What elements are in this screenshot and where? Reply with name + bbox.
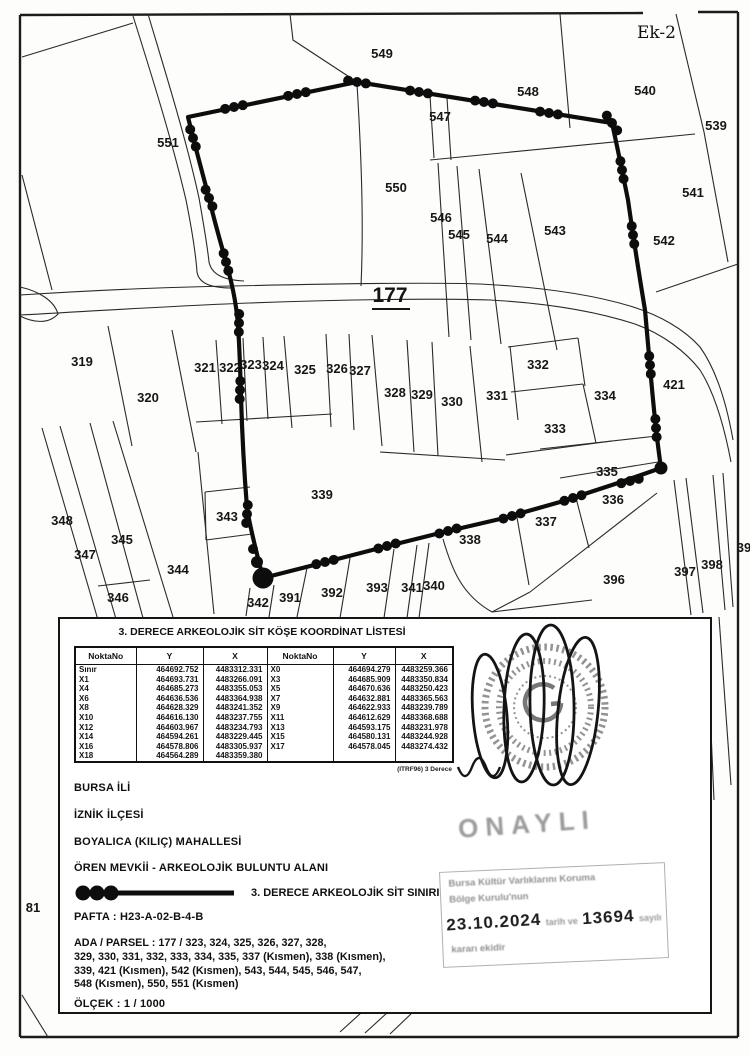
- parcel-label: 397: [674, 564, 696, 579]
- coordinate-value: 464580.131: [333, 732, 395, 742]
- parcel-label: 336: [602, 492, 624, 507]
- parcel-label: 335: [596, 464, 618, 479]
- parcel-label: 334: [594, 388, 616, 403]
- datum-note: (ITRF96) 3 Derece: [74, 766, 452, 773]
- coordinate-value: 464692.752: [136, 665, 203, 675]
- point-id: X1: [75, 675, 136, 685]
- decision-stamp: Bursa Kültür Varlıklarını Koruma Bölge K…: [439, 862, 669, 968]
- coordinate-value: 4483237.755: [203, 713, 267, 723]
- site-boundary-line: [188, 82, 661, 578]
- coordinate-value: 4483312.331: [203, 665, 267, 675]
- point-id: X11: [267, 713, 333, 723]
- coordinate-value: 4483359.380: [203, 751, 267, 762]
- coordinate-row: X1464693.7314483266.091X3464685.90944833…: [75, 675, 453, 685]
- point-id: X12: [75, 723, 136, 733]
- ada-parsel-line: ADA / PARSEL : 177 / 323, 324, 325, 326,…: [74, 937, 386, 951]
- parcel-label: 81: [26, 900, 40, 915]
- parcel-label: 324: [262, 358, 284, 373]
- parcel-label: 548: [517, 84, 539, 99]
- parcel-label: 321: [194, 360, 216, 375]
- parcel-label: 551: [157, 135, 179, 150]
- stamp-text: tarih ve: [546, 916, 578, 927]
- parcel-label: 329: [411, 387, 433, 402]
- parcel-label: 393: [366, 580, 388, 595]
- coordinate-value: 464593.175: [333, 723, 395, 733]
- point-id: [267, 751, 333, 762]
- coordinate-value: 464628.329: [136, 703, 203, 713]
- parcel-label: 543: [544, 223, 566, 238]
- coordinate-value: 4483229.445: [203, 732, 267, 742]
- point-id: X6: [75, 694, 136, 704]
- parcel-label: 421: [663, 377, 685, 392]
- legend-info-box: 3. DERECE ARKEOLOJİK SİT KÖŞE KOORDİNAT …: [58, 617, 712, 1014]
- coordinate-value: 464670.636: [333, 684, 395, 694]
- point-id: X10: [75, 713, 136, 723]
- parcel-label: 325: [294, 362, 316, 377]
- parcel-label: 337: [535, 514, 557, 529]
- parcel-label: 347: [74, 547, 96, 562]
- coordinate-row: X10464616.1304483237.755X11464612.629448…: [75, 713, 453, 723]
- point-id: X15: [267, 732, 333, 742]
- parcel-label: 326: [326, 361, 348, 376]
- parcel-label: 39: [737, 540, 750, 555]
- parcel-label: 342: [247, 595, 269, 610]
- parcel-label: 332: [527, 357, 549, 372]
- parcel-label: 541: [682, 185, 704, 200]
- pafta-line: PAFTA : H23-A-02-B-4-B: [74, 911, 203, 923]
- neighborhood-line: BOYALICA (KILIÇ) MAHALLESİ: [74, 836, 242, 848]
- parcel-label: 396: [603, 572, 625, 587]
- coordinate-row: X16464578.8064483305.937X17464578.045448…: [75, 742, 453, 752]
- parcel-label: 338: [459, 532, 481, 547]
- parcel-label: 550: [385, 180, 407, 195]
- point-id: X7: [267, 694, 333, 704]
- parcel-label: 319: [71, 354, 93, 369]
- coordinate-row: X14464594.2614483229.445X15464580.131448…: [75, 732, 453, 742]
- stamp-line: Bölge Kurulu'nun: [449, 891, 529, 905]
- coordinate-value: 464578.806: [136, 742, 203, 752]
- coordinate-value: 4483234.793: [203, 723, 267, 733]
- coordinate-row: X8464628.3294483241.352X9464622.93344832…: [75, 703, 453, 713]
- parcel-label: 339: [311, 487, 333, 502]
- parcel-label: 320: [137, 390, 159, 405]
- handwritten-date: 23.10.2024: [446, 910, 542, 936]
- parcel-label: 331: [486, 388, 508, 403]
- coordinate-value: 4483241.352: [203, 703, 267, 713]
- ada-parsel-line: 548 (Kısmen), 550, 551 (Kısmen): [74, 978, 386, 992]
- column-header: X: [203, 647, 267, 665]
- coordinate-value: 464616.130: [136, 713, 203, 723]
- site-line: ÖREN MEVKİİ - ARKEOLOJİK BULUNTU ALANI: [74, 862, 328, 874]
- point-id: X13: [267, 723, 333, 733]
- parcel-label: 546: [430, 210, 452, 225]
- point-id: X17: [267, 742, 333, 752]
- point-id: X4: [75, 684, 136, 694]
- parcel-label: 545: [448, 227, 470, 242]
- coordinate-table: NoktaNoYXNoktaNoYX Sınır464692.752448331…: [74, 646, 454, 763]
- parcel-label: 544: [486, 231, 508, 246]
- boundary-corner-dots: [185, 76, 667, 589]
- coordinate-value: 4483355.053: [203, 684, 267, 694]
- parcel-label: 348: [51, 513, 73, 528]
- parcel-label: 542: [653, 233, 675, 248]
- stamp-text: sayılı: [639, 912, 662, 923]
- district-line: İZNİK İLÇESİ: [74, 809, 144, 821]
- coordinate-row: Sınır464692.7524483312.331X0464694.27944…: [75, 665, 453, 675]
- stamp-line: kararı ekidir: [451, 942, 505, 955]
- coordinate-row: X18464564.2894483359.380: [75, 751, 453, 762]
- road-number-label: 177: [372, 284, 407, 307]
- parcel-label: 392: [321, 585, 343, 600]
- coordinate-value: 464694.279: [333, 665, 395, 675]
- coordinate-row: X12464603.9674483234.793X13464593.175448…: [75, 723, 453, 733]
- parcel-label: 398: [701, 557, 723, 572]
- coordinate-value: 464603.967: [136, 723, 203, 733]
- ada-parsel-block: ADA / PARSEL : 177 / 323, 324, 325, 326,…: [74, 937, 386, 992]
- parcel-label: 539: [705, 118, 727, 133]
- coordinate-value: 464612.629: [333, 713, 395, 723]
- point-id: X16: [75, 742, 136, 752]
- coordinate-value: 464693.731: [136, 675, 203, 685]
- coordinate-table-header: NoktaNoYXNoktaNoYX: [75, 647, 453, 665]
- coordinate-value: 4483364.938: [203, 694, 267, 704]
- legend-row: 3. DERECE ARKEOLOJİK SİT SINIRI: [72, 883, 439, 903]
- coordinate-value: 464632.881: [333, 694, 395, 704]
- coordinate-value: 464564.289: [136, 751, 203, 762]
- stamp-decision-line: 23.10.2024 tarih ve 13694 sayılı: [446, 905, 662, 934]
- province-line: BURSA İLİ: [74, 782, 130, 794]
- parcel-label: 549: [371, 46, 393, 61]
- coordinate-value: 4483266.091: [203, 675, 267, 685]
- stamp-line: Bursa Kültür Varlıklarını Koruma: [448, 872, 595, 889]
- point-id: Sınır: [75, 665, 136, 675]
- annex-label: Ek-2: [637, 23, 676, 43]
- point-id: X3: [267, 675, 333, 685]
- point-id: X8: [75, 703, 136, 713]
- parcel-label: 343: [216, 509, 238, 524]
- column-header: Y: [333, 647, 395, 665]
- parcel-label: 330: [441, 394, 463, 409]
- coordinate-value: 464685.909: [333, 675, 395, 685]
- coordinate-value: 464594.261: [136, 732, 203, 742]
- point-id: X5: [267, 684, 333, 694]
- ada-parsel-line: 329, 330, 331, 332, 333, 334, 335, 337 (…: [74, 951, 386, 965]
- point-id: X9: [267, 703, 333, 713]
- column-header: Y: [136, 647, 203, 665]
- parcel-label: 345: [111, 532, 133, 547]
- point-id: X14: [75, 732, 136, 742]
- parcel-label: 323: [240, 357, 262, 372]
- point-id: X0: [267, 665, 333, 675]
- coordinate-table-title: 3. DERECE ARKEOLOJİK SİT KÖŞE KOORDİNAT …: [74, 626, 450, 638]
- approval-stamp: ONAYLI: [457, 804, 597, 845]
- coordinate-value: 464622.933: [333, 703, 395, 713]
- scanned-cadastral-sheet: 5495485405395475515505465455445435425414…: [0, 0, 750, 1055]
- coordinate-row: X6464636.5364483364.938X7464632.88144833…: [75, 694, 453, 704]
- coordinate-value: [333, 751, 395, 762]
- coordinate-value: 464578.045: [333, 742, 395, 752]
- parcel-label: 540: [634, 83, 656, 98]
- column-header: NoktaNo: [267, 647, 333, 665]
- official-seal-and-signature: [428, 619, 668, 804]
- parcel-label: 346: [107, 590, 129, 605]
- parcel-label: 341: [401, 580, 423, 595]
- column-header: NoktaNo: [75, 647, 136, 665]
- coordinate-value: 4483305.937: [203, 742, 267, 752]
- ada-parsel-line: 339, 421 (Kısmen), 542 (Kısmen), 543, 54…: [74, 965, 386, 979]
- parcel-label: 340: [423, 578, 445, 593]
- handwritten-number: 13694: [582, 906, 635, 929]
- parcel-label: 327: [349, 363, 371, 378]
- coordinate-value: 464636.536: [136, 694, 203, 704]
- site-boundary-legend-symbol: [72, 884, 237, 902]
- point-id: X18: [75, 751, 136, 762]
- legend-label: 3. DERECE ARKEOLOJİK SİT SINIRI: [251, 887, 439, 899]
- scale-line: ÖLÇEK : 1 / 1000: [74, 998, 165, 1010]
- parcel-label: 391: [279, 590, 301, 605]
- parcel-label: 322: [219, 360, 241, 375]
- parcel-label: 344: [167, 562, 189, 577]
- coordinate-row: X4464685.2734483355.053X5464670.63644832…: [75, 684, 453, 694]
- parcel-label: 328: [384, 385, 406, 400]
- parcel-label: 547: [429, 109, 451, 124]
- parcel-label: 333: [544, 421, 566, 436]
- coordinate-value: 464685.273: [136, 684, 203, 694]
